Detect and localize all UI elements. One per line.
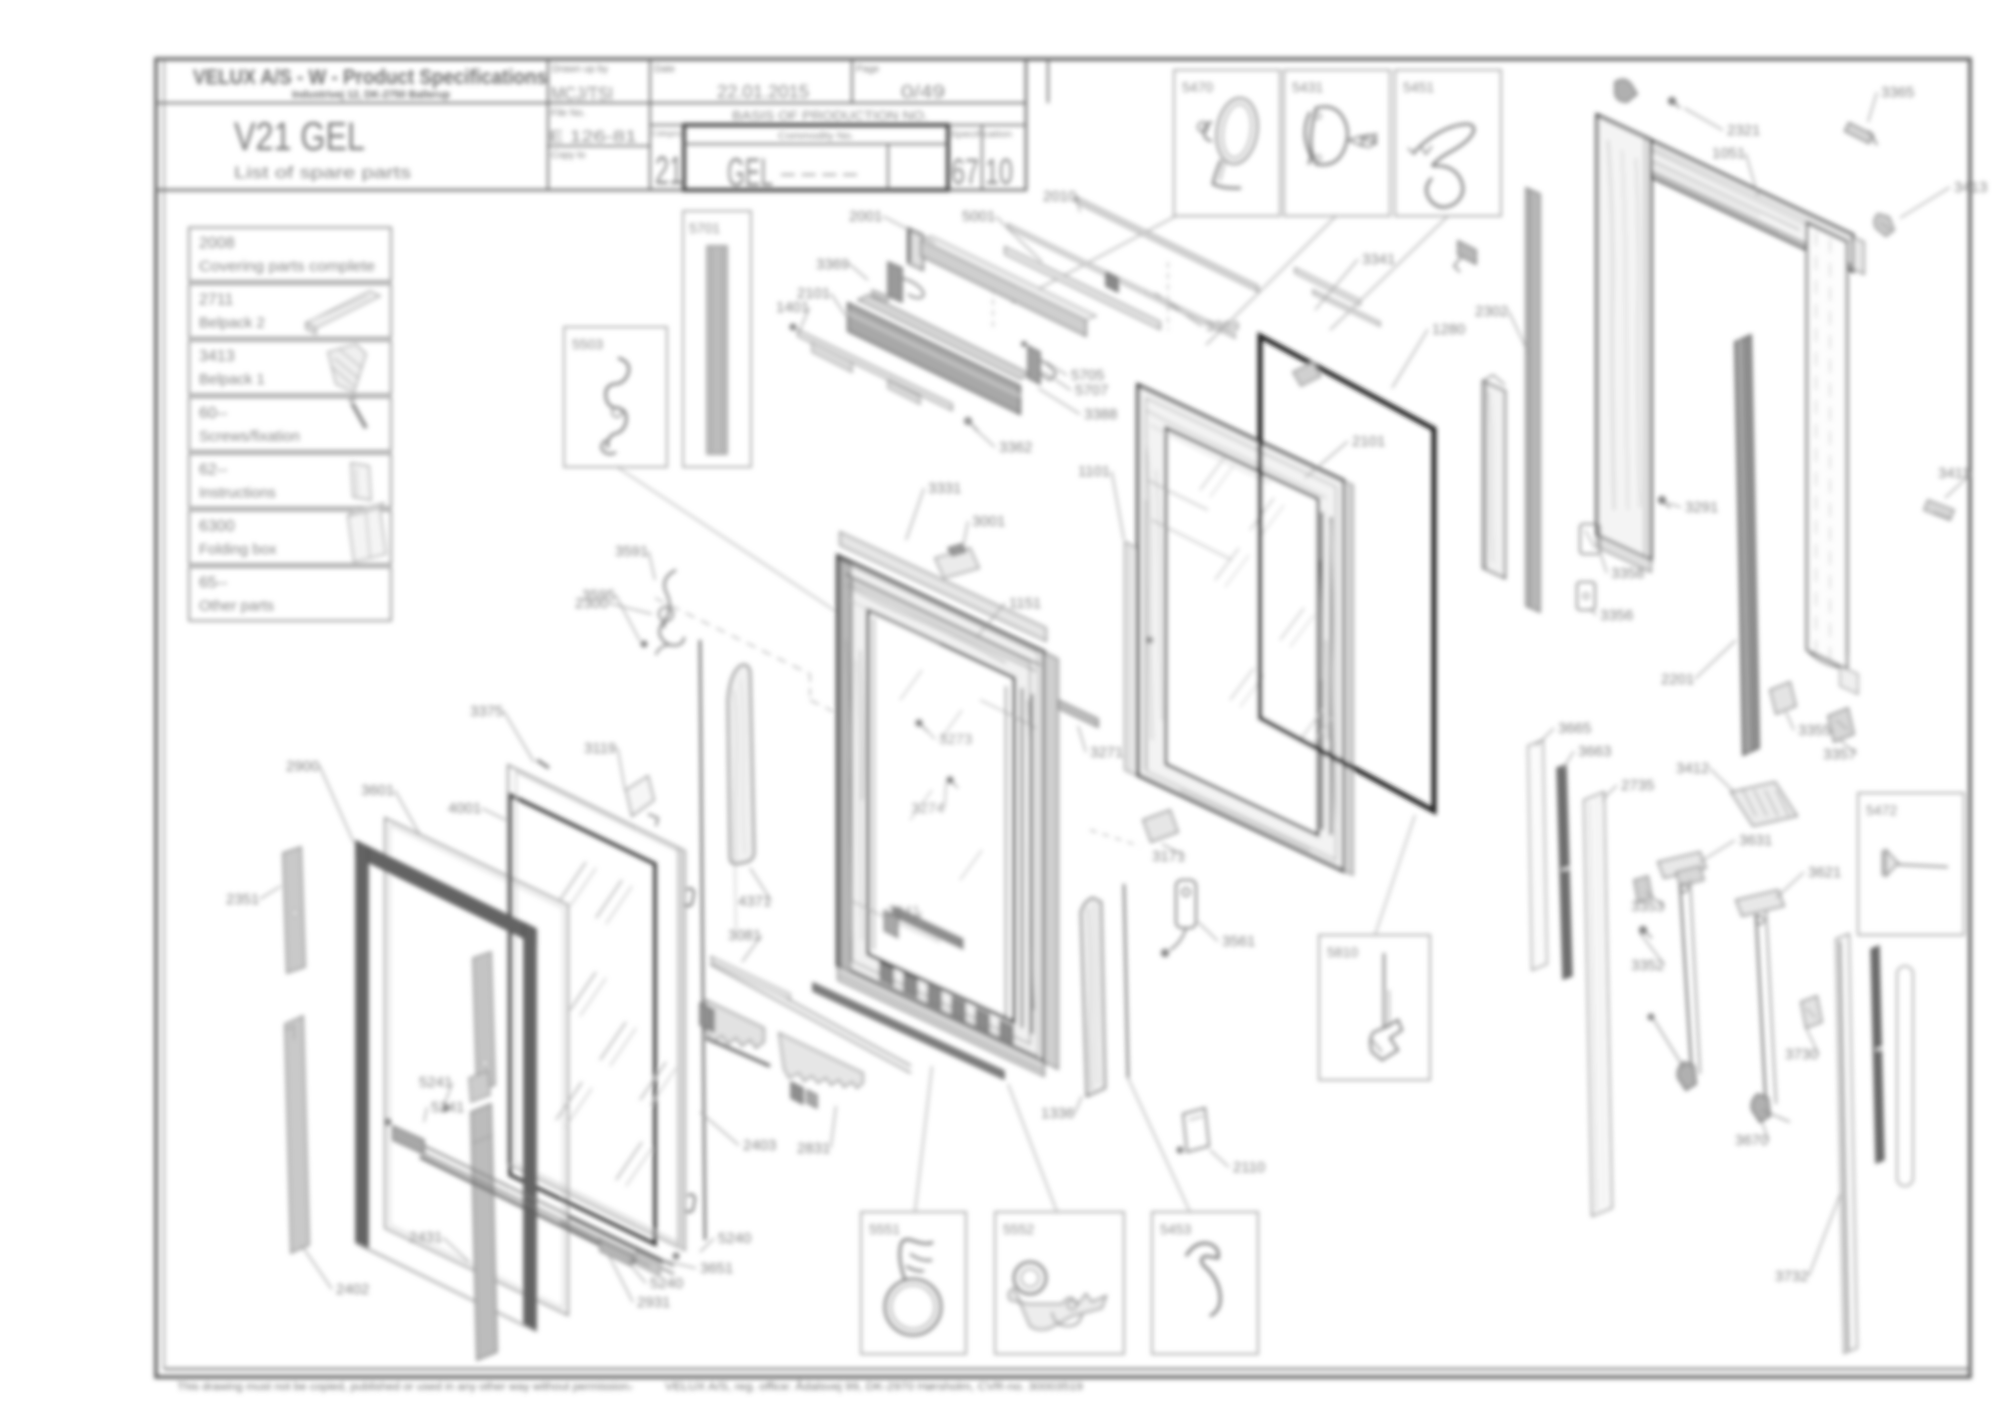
svg-text:3388: 3388 — [1084, 406, 1117, 423]
svg-text:3631: 3631 — [1739, 832, 1772, 849]
svg-text:5241: 5241 — [419, 1074, 452, 1091]
svg-text:Instructions: Instructions — [199, 484, 276, 501]
svg-text:1051: 1051 — [1712, 145, 1745, 162]
svg-text:22.01.2015: 22.01.2015 — [717, 82, 809, 102]
svg-text:Other parts: Other parts — [199, 598, 274, 615]
svg-text:File No.: File No. — [551, 108, 585, 119]
svg-text:Industrivej 12, DK-2750 Baller: Industrivej 12, DK-2750 Ballerup — [292, 89, 450, 101]
svg-text:65--: 65-- — [199, 575, 227, 592]
svg-text:Date: Date — [654, 64, 676, 75]
svg-text:3561: 3561 — [1222, 933, 1255, 950]
svg-text:67: 67 — [951, 151, 979, 192]
svg-text:E 126-81: E 126-81 — [549, 127, 637, 146]
svg-text:Specification: Specification — [950, 129, 1012, 139]
svg-text:3171: 3171 — [1152, 848, 1185, 865]
svg-text:3273: 3273 — [939, 731, 972, 748]
svg-text:3413: 3413 — [1954, 179, 1987, 196]
svg-text:2403: 2403 — [743, 1137, 776, 1154]
svg-text:3274: 3274 — [911, 800, 944, 817]
svg-text:2321: 2321 — [1727, 122, 1760, 139]
svg-text:Belpack 1: Belpack 1 — [199, 371, 265, 388]
svg-text:2735: 2735 — [1621, 777, 1654, 794]
svg-text:4371: 4371 — [738, 893, 771, 910]
svg-text:MCJ/TSI: MCJ/TSI — [551, 84, 613, 104]
svg-text:21: 21 — [655, 149, 683, 193]
svg-text:List of spare parts: List of spare parts — [234, 163, 411, 182]
svg-text:This drawing must not be copie: This drawing must not be copied, publish… — [177, 1381, 632, 1393]
svg-text:Folding box: Folding box — [199, 541, 277, 558]
svg-text:2900: 2900 — [286, 758, 319, 775]
svg-text:5241: 5241 — [431, 1099, 464, 1116]
svg-text:2110: 2110 — [1233, 1159, 1265, 1176]
svg-text:3357: 3357 — [1823, 746, 1856, 763]
svg-text:5453: 5453 — [1160, 1221, 1191, 1237]
svg-text:5701: 5701 — [689, 220, 720, 236]
svg-text:2101: 2101 — [1352, 433, 1385, 450]
svg-text:3362: 3362 — [999, 439, 1032, 456]
svg-text:3119: 3119 — [584, 740, 616, 757]
svg-text:-: - — [630, 1381, 634, 1393]
svg-text:0/49: 0/49 — [901, 82, 945, 102]
svg-text:Belpack 2: Belpack 2 — [199, 315, 265, 332]
svg-text:4001: 4001 — [448, 800, 481, 817]
svg-text:3665: 3665 — [1558, 720, 1591, 737]
svg-text:5470: 5470 — [1182, 79, 1213, 95]
svg-text:Commodity No.: Commodity No. — [778, 131, 854, 142]
svg-text:5240: 5240 — [650, 1275, 683, 1292]
svg-text:BASIS OF PRODUCTION NO.: BASIS OF PRODUCTION NO. — [732, 108, 928, 123]
svg-text:3651: 3651 — [700, 1260, 733, 1277]
svg-text:3621: 3621 — [1808, 864, 1841, 881]
svg-text:3341: 3341 — [1362, 251, 1395, 268]
svg-text:5551: 5551 — [869, 1221, 900, 1237]
svg-text:Page: Page — [856, 64, 880, 75]
svg-text:2931: 2931 — [637, 1294, 670, 1311]
svg-text:5552: 5552 — [1003, 1221, 1034, 1237]
svg-text:1280: 1280 — [1432, 321, 1465, 338]
svg-text:3413: 3413 — [199, 348, 235, 365]
svg-text:2431: 2431 — [409, 1229, 442, 1246]
svg-text:5503: 5503 — [572, 336, 603, 352]
svg-text:5707: 5707 — [1075, 382, 1108, 399]
svg-text:3356: 3356 — [1600, 607, 1633, 624]
svg-text:5001: 5001 — [962, 208, 995, 225]
svg-text:3730: 3730 — [1785, 1046, 1818, 1063]
svg-text:10: 10 — [985, 151, 1013, 192]
svg-text:2010: 2010 — [1043, 188, 1076, 205]
svg-text:GEL: GEL — [727, 151, 773, 195]
svg-text:3358: 3358 — [1611, 565, 1644, 582]
svg-text:1151: 1151 — [1009, 595, 1041, 612]
svg-text:3732: 3732 — [1775, 1268, 1808, 1285]
svg-text:3353: 3353 — [1631, 898, 1664, 915]
svg-text:3591: 3591 — [615, 543, 648, 560]
svg-text:Copy to: Copy to — [551, 150, 586, 161]
svg-text:2201: 2201 — [1661, 671, 1694, 688]
svg-text:3369: 3369 — [1206, 318, 1239, 335]
svg-text:60--: 60-- — [199, 405, 227, 422]
svg-text:1101: 1101 — [1078, 463, 1110, 480]
svg-text:Screws/fixation: Screws/fixation — [199, 428, 300, 445]
svg-text:3241: 3241 — [887, 903, 920, 920]
svg-text:V21 GEL: V21 GEL — [234, 115, 365, 159]
svg-text:Covering parts complete: Covering parts complete — [199, 258, 375, 275]
svg-text:2351: 2351 — [226, 891, 259, 908]
svg-text:2302: 2302 — [1475, 303, 1508, 320]
svg-text:5810: 5810 — [1327, 944, 1358, 960]
svg-text:1336: 1336 — [1041, 1105, 1074, 1122]
svg-text:5431: 5431 — [1292, 79, 1323, 95]
svg-text:3375: 3375 — [470, 703, 503, 720]
svg-text:3369: 3369 — [816, 256, 849, 273]
svg-text:3365: 3365 — [1881, 84, 1914, 101]
svg-text:3670: 3670 — [1735, 1132, 1768, 1149]
svg-text:Category: Category — [652, 129, 682, 138]
svg-text:2711: 2711 — [199, 292, 234, 309]
svg-text:2300: 2300 — [575, 595, 608, 612]
svg-text:62--: 62-- — [199, 461, 227, 478]
svg-text:3355: 3355 — [1798, 722, 1831, 739]
svg-text:5240: 5240 — [718, 1230, 751, 1247]
svg-text:2001: 2001 — [849, 208, 882, 225]
svg-text:VELUX A/S, reg. office: Ådalsv: VELUX A/S, reg. office: Ådalsvej 99, DK-… — [665, 1380, 1083, 1393]
svg-text:5451: 5451 — [1403, 79, 1434, 95]
svg-text:3663: 3663 — [1578, 743, 1611, 760]
svg-text:2831: 2831 — [797, 1140, 830, 1157]
svg-text:3001: 3001 — [972, 513, 1005, 530]
svg-text:VELUX A/S - W - Product Spec: VELUX A/S - W - Product Specifications — [193, 66, 547, 89]
svg-text:1401: 1401 — [776, 299, 809, 316]
svg-text:3271: 3271 — [1090, 744, 1123, 761]
svg-text:3331: 3331 — [928, 480, 961, 497]
svg-text:Drawn up by: Drawn up by — [552, 64, 608, 75]
svg-text:2008: 2008 — [199, 235, 235, 252]
svg-text:3412: 3412 — [1676, 760, 1709, 777]
svg-text:3291: 3291 — [1685, 499, 1718, 516]
svg-text:5472: 5472 — [1866, 802, 1897, 818]
svg-text:6300: 6300 — [199, 518, 235, 535]
svg-text:3352: 3352 — [1631, 957, 1664, 974]
svg-text:2402: 2402 — [336, 1281, 369, 1298]
svg-text:– – – –: – – – – — [781, 160, 858, 187]
svg-text:3601: 3601 — [361, 782, 394, 799]
